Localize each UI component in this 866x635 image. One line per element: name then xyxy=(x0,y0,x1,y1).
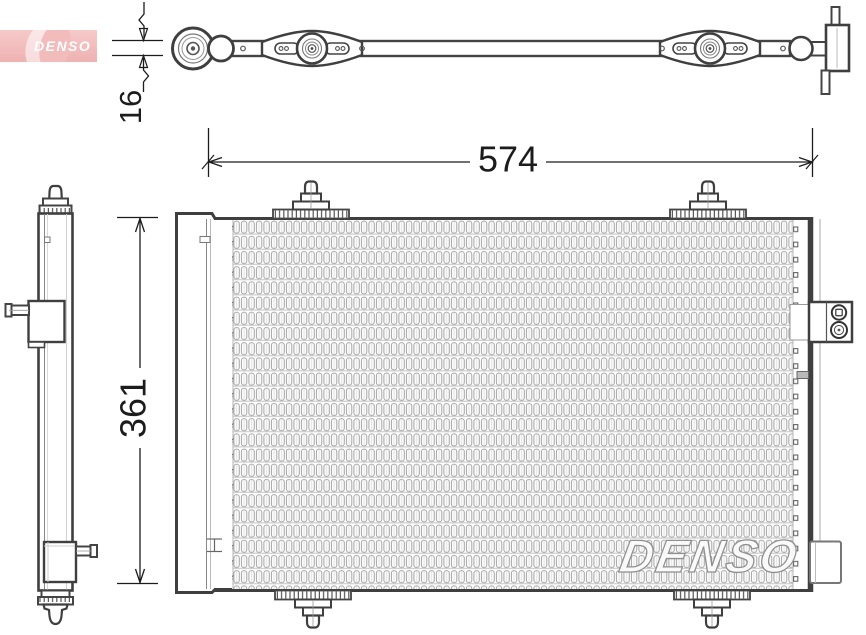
side-left-block xyxy=(29,301,65,342)
left-header-tank xyxy=(177,214,233,593)
depth-dimension-label: 16 xyxy=(113,90,148,124)
logo-text: DENSO xyxy=(34,38,91,54)
side-body xyxy=(39,214,73,591)
wall-peg xyxy=(797,372,809,379)
side-bottom-block xyxy=(44,542,76,582)
width-dimension-label: 574 xyxy=(478,139,538,180)
bottom-right-box xyxy=(810,542,841,584)
front-view: DENSO xyxy=(177,182,853,628)
denso-logo: DENSO xyxy=(0,30,97,62)
top-mounting-bracket-left xyxy=(273,182,349,219)
bottom-mounting-bracket-left xyxy=(275,591,351,628)
side-bottom-pin xyxy=(44,605,68,625)
refrigerant-port-block xyxy=(790,302,852,342)
port-upper xyxy=(832,305,846,319)
technical-drawing: 16 574 361 xyxy=(0,0,866,635)
pipe-knuckle xyxy=(209,36,234,61)
right-header-tank xyxy=(811,217,821,592)
top-view xyxy=(173,7,850,94)
height-dimension: 361 xyxy=(113,218,158,584)
top-view-bracket-right xyxy=(660,31,760,66)
bottom-mounting-bracket-right xyxy=(674,591,750,628)
side-view xyxy=(6,186,98,624)
top-mounting-bracket-right xyxy=(670,182,746,219)
width-dimension: 574 xyxy=(202,128,818,180)
watermark-text: DENSO xyxy=(616,530,804,582)
depth-dimension: 16 xyxy=(112,2,163,124)
height-dimension-label: 361 xyxy=(113,378,154,438)
drawing-canvas: DENSO xyxy=(0,0,866,635)
top-view-end-bracket xyxy=(790,7,850,94)
top-view-bracket-left xyxy=(262,31,362,66)
